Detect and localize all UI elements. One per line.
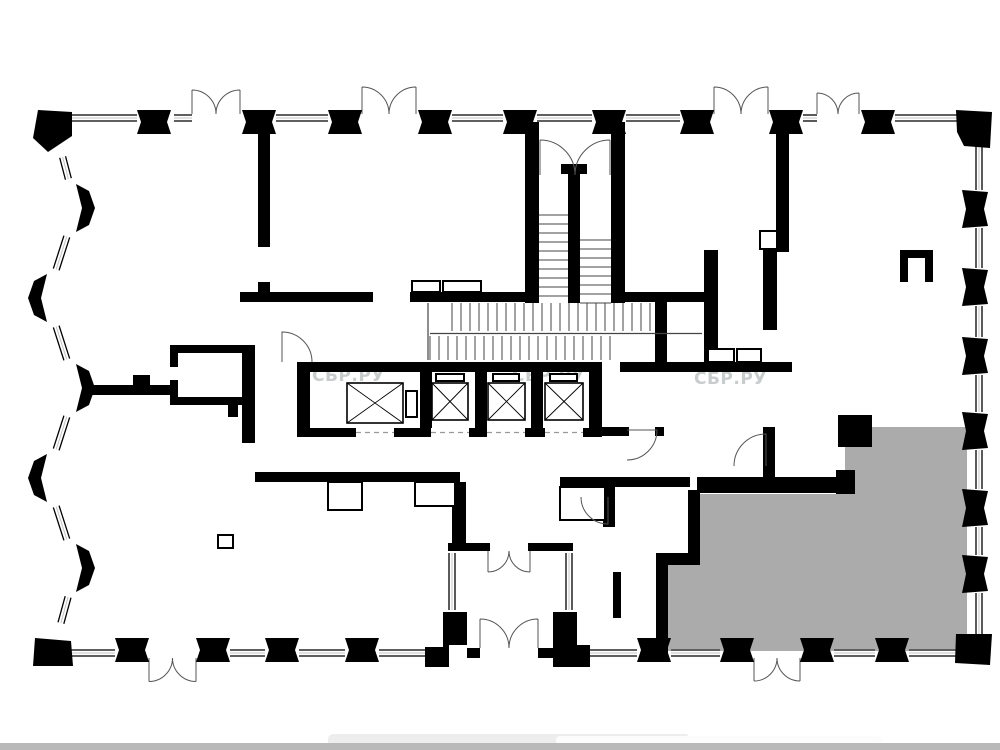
wall — [87, 385, 172, 395]
door-swing — [509, 551, 530, 572]
door-swing — [282, 332, 312, 362]
corner-pier — [33, 638, 73, 666]
wall — [242, 345, 255, 443]
elevator-shafts-layer — [347, 383, 583, 423]
wall — [170, 380, 178, 405]
wall — [467, 648, 480, 658]
door-swing — [714, 87, 741, 114]
fixture-box — [493, 374, 519, 381]
wall — [297, 362, 310, 437]
wall — [600, 427, 629, 436]
facade-pier — [875, 638, 909, 662]
wall — [528, 543, 573, 551]
door-swing — [509, 619, 538, 648]
fixture-box — [760, 231, 777, 249]
fixture-box — [328, 482, 362, 510]
facade-pier — [137, 110, 171, 134]
wall — [925, 250, 933, 282]
wall — [538, 648, 553, 658]
floor-plan-viewer: СБР.РУСБР.РУСБР.РУ — [0, 0, 1000, 750]
fixture-box — [443, 281, 481, 292]
fixture-box — [218, 535, 233, 548]
fixture-box — [436, 374, 464, 381]
bottom-panel-inner — [556, 736, 882, 743]
facade-pier — [265, 638, 299, 662]
facade-pier — [196, 638, 230, 662]
wall — [258, 122, 270, 247]
door-swing — [480, 619, 509, 648]
facade-pier — [769, 110, 803, 134]
facade-pier — [592, 110, 626, 134]
bottom-panel-edge[interactable] — [328, 734, 690, 743]
fixture-box — [412, 281, 440, 292]
door-swing — [754, 658, 777, 681]
bottom-scrollbar[interactable] — [0, 743, 1000, 750]
door-swing — [734, 434, 766, 466]
wall — [625, 292, 712, 302]
wall — [531, 372, 543, 428]
door-swing — [488, 551, 509, 572]
wall — [240, 292, 373, 302]
fixture-box — [406, 391, 417, 417]
facade-pier — [28, 454, 47, 502]
wall — [297, 362, 602, 372]
wall — [900, 250, 908, 282]
facade-pier — [861, 110, 895, 134]
floor-plan-svg: СБР.РУСБР.РУСБР.РУ — [0, 0, 1000, 750]
wall — [568, 172, 580, 303]
door-swing — [389, 87, 416, 114]
facade-pier — [28, 274, 47, 322]
door-swing — [777, 658, 800, 681]
fixture-box — [708, 349, 734, 362]
wall — [410, 292, 525, 302]
wall — [620, 362, 792, 372]
facade-pier — [962, 337, 988, 375]
facade-pier — [800, 638, 834, 662]
wall — [836, 470, 855, 494]
fixture-box — [737, 349, 761, 362]
facade-pier — [720, 638, 754, 662]
door-swing — [216, 90, 240, 114]
door-swing — [627, 430, 657, 460]
facade-pier — [418, 110, 452, 134]
facade-pier — [76, 184, 95, 232]
facade-pier — [680, 110, 714, 134]
wall — [611, 122, 625, 303]
facade-pier — [962, 190, 988, 228]
facade-pier — [242, 110, 276, 134]
corner-pier — [33, 110, 72, 152]
wall — [420, 372, 432, 428]
facade-pier — [345, 638, 379, 662]
door-swing — [817, 93, 838, 114]
entrance-pier — [553, 612, 590, 667]
door-swing — [838, 93, 859, 114]
wall — [170, 345, 250, 353]
wall — [763, 427, 775, 493]
corner-pier — [955, 634, 992, 665]
wall — [560, 477, 690, 487]
fixture-box — [415, 482, 455, 506]
wall — [448, 543, 490, 551]
door-swing — [741, 87, 768, 114]
wall — [763, 250, 777, 330]
wall — [255, 472, 460, 482]
facade-pier — [76, 544, 95, 592]
wall — [656, 553, 700, 565]
fixture-box — [560, 487, 605, 520]
wall — [133, 375, 150, 385]
facade-pier — [115, 638, 149, 662]
wall — [613, 572, 621, 618]
facade-pier — [637, 638, 671, 662]
door-swing — [149, 658, 173, 682]
wall — [170, 397, 250, 405]
unit-area[interactable] — [668, 427, 967, 651]
wall — [838, 415, 872, 447]
door-swing — [362, 87, 389, 114]
highlighted-unit[interactable] — [668, 427, 967, 651]
wall — [228, 405, 238, 417]
wall — [525, 122, 539, 303]
entrance-pier — [425, 612, 467, 667]
wall — [589, 362, 602, 437]
facade-pier — [76, 364, 95, 412]
door-swing — [192, 90, 216, 114]
facade-pier — [328, 110, 362, 134]
facade-pier — [962, 268, 988, 306]
wall — [655, 292, 667, 372]
corner-pier — [956, 110, 992, 148]
fixture-box — [550, 374, 577, 381]
wall — [475, 372, 487, 428]
door-swing — [173, 658, 197, 682]
wall — [170, 345, 178, 367]
facade-pier — [503, 110, 537, 134]
